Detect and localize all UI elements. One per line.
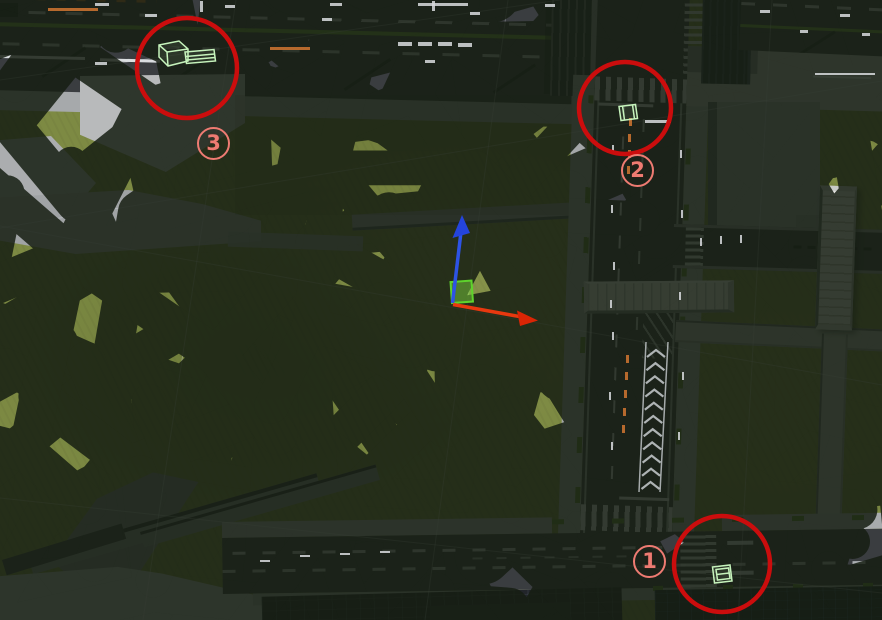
pole-shadow — [493, 64, 536, 94]
bus-lane-marks — [37, 0, 157, 3]
marker-label-3: 3 — [197, 127, 230, 160]
rooftop-glass — [655, 586, 882, 620]
stop-line — [598, 103, 653, 108]
median-strip — [740, 24, 882, 34]
walkway-canopy — [815, 185, 857, 330]
rooftop-small — [430, 602, 570, 620]
fence-line — [813, 76, 871, 80]
lane-dashes — [223, 561, 873, 573]
pole-shadow — [344, 58, 391, 91]
stop-line — [619, 496, 669, 501]
marker-label-2: 2 — [621, 154, 654, 187]
crosswalk — [685, 227, 704, 265]
stop-marks — [727, 541, 753, 545]
stop-marks — [728, 571, 754, 575]
lane-dashes — [232, 546, 662, 555]
building-large-roof — [717, 100, 820, 234]
lane-dashes — [472, 555, 632, 559]
lane-dashes — [741, 2, 882, 11]
pedestrian-overpass — [584, 280, 734, 313]
road-top-right — [739, 0, 882, 57]
crosswalk — [680, 531, 717, 587]
lane-dashes — [3, 42, 574, 59]
crosswalk — [594, 76, 687, 103]
viewport-3d[interactable]: 1 2 3 — [0, 0, 882, 620]
marker-label-1: 1 — [633, 545, 666, 578]
pole-shadow — [41, 47, 86, 78]
hatch-zone — [642, 312, 674, 359]
building-large — [708, 100, 820, 230]
building-shadow-west — [708, 102, 717, 228]
median-strip — [0, 22, 573, 40]
pole-shadow — [796, 31, 836, 57]
corner-structure — [0, 3, 18, 17]
upper-lawn-shade — [235, 95, 585, 215]
